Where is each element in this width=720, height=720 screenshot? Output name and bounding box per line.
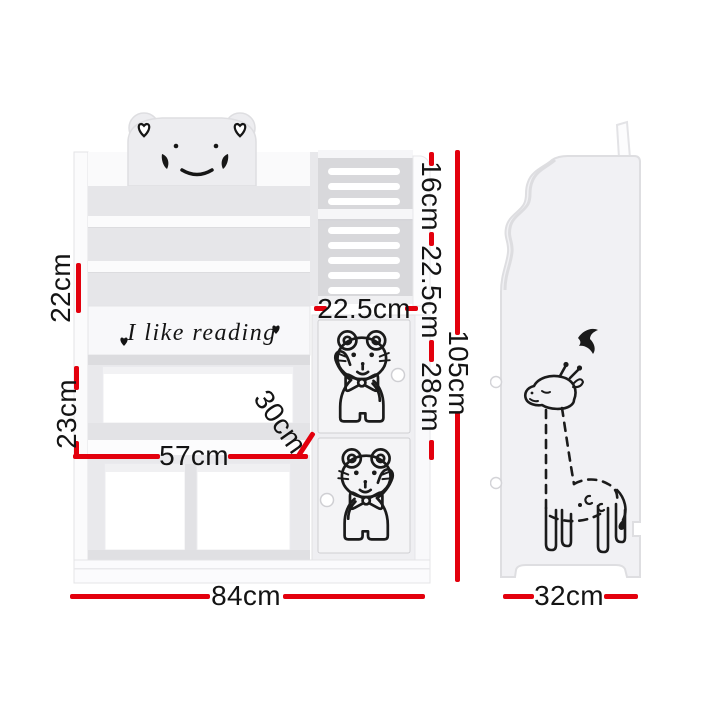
door-tower [312,315,430,560]
dim-label-inner-shelf-width: 57cm [159,440,229,472]
bear-face-icon [128,113,256,186]
tier2-surface [88,228,310,261]
side-knob-upper[interactable] [491,377,502,388]
cubby-right [197,464,290,550]
brow-dot [214,144,219,149]
display-tiers [88,186,310,306]
cubby-left [105,464,185,550]
tower-side-strip [415,315,430,560]
dim-label-overall-depth: 32cm [534,580,604,612]
dim-line-chain-tick-3 [429,340,434,362]
wall-hook-tab [617,122,630,158]
slogan-text: I like reading [126,320,276,346]
tier3-lip [88,261,310,273]
product-dimension-diagram: I like reading [0,0,720,720]
cubby-divider [185,464,197,550]
dim-line-chain-tick-4 [429,440,434,460]
tier2-lip [88,216,310,228]
bookshelf-side-view [490,112,650,585]
dim-line-32cm-left [503,594,534,599]
tier3-surface [88,273,310,306]
dim-line-84cm-right [283,594,425,599]
dim-label-overall-width: 84cm [211,580,281,612]
door-knob-bottom[interactable] [321,494,334,507]
slogan-band: I like reading [88,306,310,365]
dim-line-57cm-left [73,454,160,459]
dim-label-overall-height: 105cm [442,330,474,416]
door-knob-top[interactable] [392,369,405,382]
dim-line-105cm-lower [455,412,460,582]
dim-label-tier-spacing: 22cm [45,253,77,323]
tier1-surface [88,186,310,216]
dim-line-32cm-right [604,594,638,599]
dim-label-door-column-width: 22.5cm [317,293,411,325]
rack-shelf-band [318,209,413,220]
dim-line-chain-tick-2 [429,232,434,246]
brow-dot [174,144,179,149]
dim-label-rack-upper-height: 16cm [415,161,447,231]
dim-line-105cm-upper [455,150,460,335]
dim-label-rack-lower-height: 22.5cm [415,245,447,339]
slat-rack [310,150,430,306]
rack-slats-upper [328,168,400,205]
bookshelf-front-view: I like reading [70,108,435,588]
rack-top-lip [318,150,413,158]
dim-line-84cm-left [70,594,210,599]
side-knob-lower[interactable] [491,478,502,489]
dim-label-middle-shelf-height: 23cm [51,379,83,449]
cubby-floor [88,550,310,560]
